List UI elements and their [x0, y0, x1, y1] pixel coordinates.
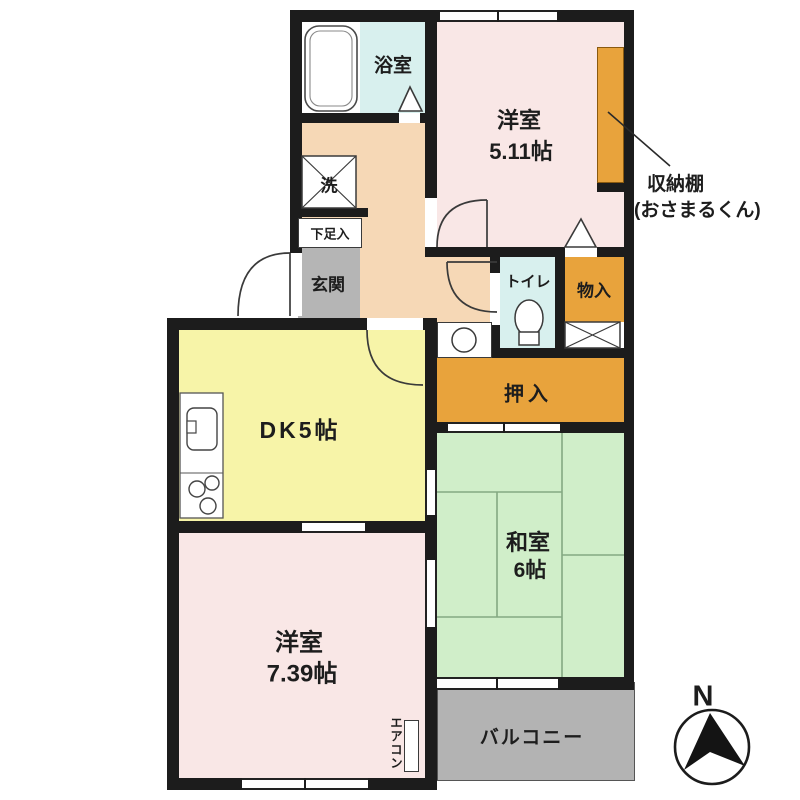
wall-closet-top	[490, 348, 624, 358]
aircon-box	[404, 720, 419, 772]
storage-shelf	[597, 47, 624, 183]
opening-dk-washitsu	[425, 470, 437, 515]
floor-plan: 浴室 洗 下足入 玄関 洋室 5.11帖 収納棚 (おさまるくん) トイレ 物入…	[0, 0, 800, 800]
wall-mid-v2	[425, 318, 437, 470]
wall-dk-top-a	[167, 318, 367, 330]
storage-small-label: 物入	[577, 277, 611, 302]
door-gap-entry	[290, 253, 302, 316]
wall-left-main	[167, 318, 179, 790]
balcony-label: バルコニー	[480, 723, 585, 750]
wall-dk-bottom-a	[167, 521, 302, 533]
western-room2-size: 7.39帖	[267, 654, 338, 689]
wall-washer-bottom	[290, 208, 368, 217]
wall-washitsu-bottom-a	[425, 677, 437, 690]
window-tick	[497, 10, 499, 22]
wall-shelf-stub	[597, 183, 634, 192]
shoe-storage-label: 下足入	[310, 224, 349, 243]
wall-west1-bottom-b	[597, 247, 624, 257]
wall-right	[624, 10, 634, 690]
compass-icon	[675, 710, 749, 784]
wall-bottom-a	[167, 778, 242, 790]
wall-washitsu-top-b	[560, 422, 634, 433]
window-tick	[503, 422, 505, 433]
wall-mid-v3	[425, 515, 437, 560]
crossed-storage-icon	[565, 322, 620, 348]
compass-north-label: N	[693, 681, 714, 714]
hallway-floor-east	[425, 247, 492, 322]
bathroom-label: 浴室	[374, 51, 412, 78]
entry-door-arc	[238, 253, 290, 316]
door-gap-toilet	[490, 273, 500, 325]
japanese-room-name: 和室	[506, 525, 550, 557]
closet-label: 押入	[504, 378, 552, 407]
toilet-floor	[500, 255, 555, 348]
shelf-note-line2: (おさまるくん)	[634, 195, 761, 222]
dk-label: DK5帖	[259, 411, 340, 445]
western-room1-size: 5.11帖	[489, 134, 553, 166]
western-room2-name: 洋室	[275, 623, 323, 658]
japanese-room-size: 6帖	[514, 554, 547, 584]
door-gap-west1	[425, 198, 437, 247]
window-tick	[496, 677, 498, 690]
shelf-note-line1: 収納棚	[647, 169, 704, 196]
wall-washitsu-top-a	[425, 422, 448, 433]
western-room1-name: 洋室	[497, 103, 541, 135]
washbasin-box	[437, 322, 492, 358]
wall-mid-v1	[425, 10, 437, 198]
wall-toilet-left-a	[490, 255, 500, 273]
entrance-label: 玄関	[311, 271, 345, 296]
wall-mid-v4	[425, 627, 437, 790]
wall-washitsu-bottom-b	[558, 677, 634, 690]
toilet-label: トイレ	[505, 271, 550, 292]
washer-label: 洗	[321, 172, 338, 197]
door-gap-storage-small	[565, 247, 597, 257]
opening-west2-washitsu	[425, 560, 437, 627]
wall-bath-bottom-a	[290, 113, 399, 123]
opening-dk-west2	[302, 521, 365, 533]
aircon-label: エアコン	[386, 716, 405, 770]
bathtub-icon	[305, 26, 357, 111]
wall-toilet-divider	[555, 247, 565, 348]
window-tick	[304, 778, 306, 790]
